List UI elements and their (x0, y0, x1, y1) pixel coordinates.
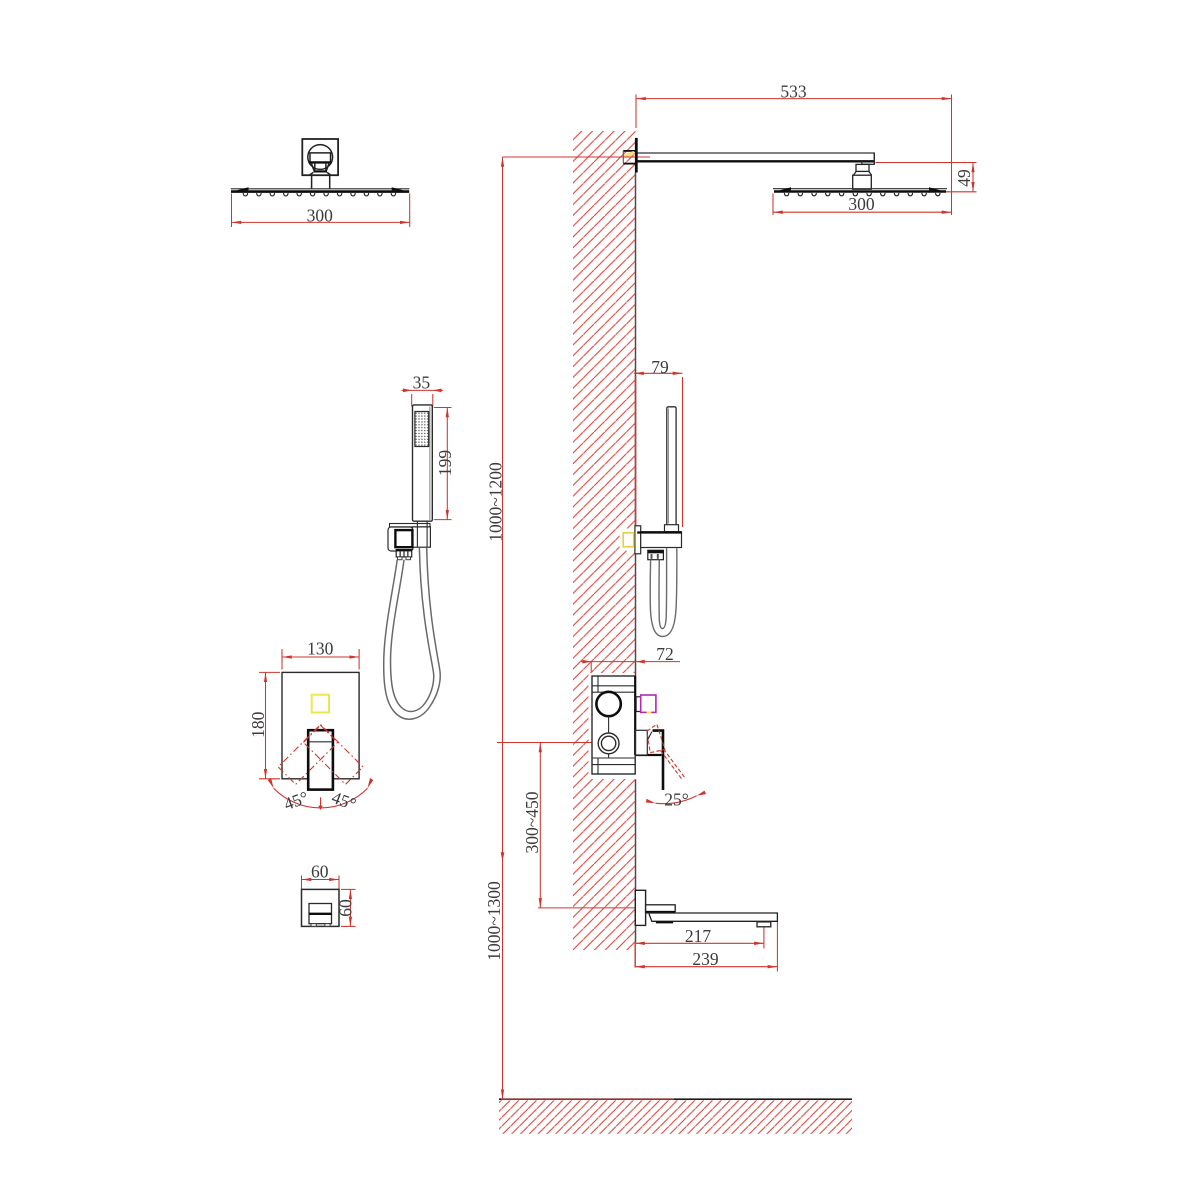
svg-text:79: 79 (651, 357, 669, 377)
svg-text:72: 72 (656, 644, 674, 664)
svg-text:1000~1300: 1000~1300 (484, 881, 504, 961)
svg-text:217: 217 (685, 926, 712, 946)
svg-text:60: 60 (335, 899, 355, 917)
svg-text:533: 533 (780, 82, 807, 102)
svg-text:60: 60 (311, 862, 329, 882)
svg-text:49: 49 (954, 169, 974, 187)
svg-text:300: 300 (307, 206, 334, 226)
svg-text:130: 130 (307, 639, 334, 659)
svg-text:1000~1200: 1000~1200 (486, 462, 506, 542)
svg-text:180: 180 (248, 711, 268, 738)
svg-text:300: 300 (848, 194, 875, 214)
svg-text:35: 35 (413, 373, 431, 393)
svg-text:199: 199 (435, 450, 455, 477)
svg-text:239: 239 (692, 949, 719, 969)
svg-text:300~450: 300~450 (522, 791, 542, 853)
svg-text:25°: 25° (664, 790, 689, 810)
